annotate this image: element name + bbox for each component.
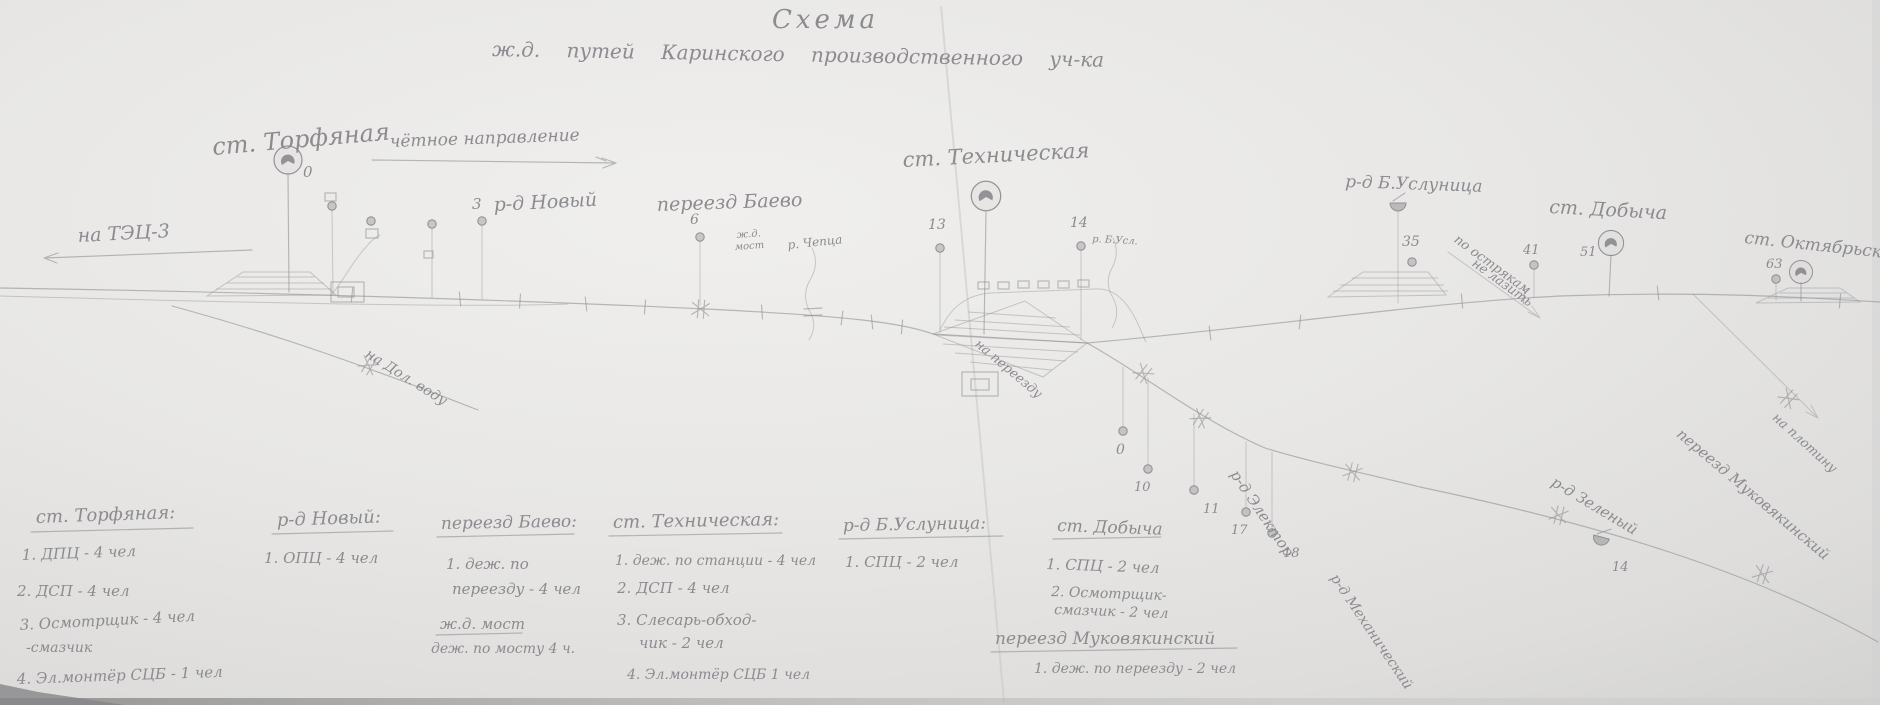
legend-bridge-title: ж.д. мост [440,615,525,633]
baevo-dwarf-signal-icon [696,233,704,241]
legend-torfyanaya-line4: -смазчик [26,640,93,656]
legend-baevo-line1: 1. деж. по [446,555,529,573]
dobycha-main-signal-icon [1598,230,1623,255]
legend-mukovyakinsky-title: переезд Муковякинский [995,629,1215,649]
scheme-title: Схема [772,5,879,35]
legend-tekhnicheskaya-line1: 1. деж. по станции - 4 чел [615,553,816,569]
legend-dobycha-title: ст. Добыча [1057,516,1163,540]
legend-uslunitsa-title: р-д Б.Услуница: [843,514,986,536]
uslunitsa-dwarf-signal-icon [1408,258,1416,266]
uslunitsa-signal-number: 35 [1402,234,1420,250]
torfyanaya-dwarf-signal-icon [367,217,375,225]
branch-signal-0-number: 0 [1116,442,1125,458]
oktyabrskaya-signal-number: 63 [1766,257,1783,272]
legend-baevo-line2: переезду - 4 чел [452,580,581,598]
legend-novy-title: р-д Новый: [276,506,381,531]
legend-baevo-title: переезд Баево: [441,512,577,534]
dobycha-signal51-number: 51 [1580,245,1597,260]
branch-signal-11-number: 11 [1203,502,1220,517]
table-edge-bottom [0,698,1880,705]
legend-tekhnicheskaya-title: ст. Техническая: [613,509,780,533]
legend-torfyanaya-line2: 2. ДСП - 4 чел [16,582,130,600]
torfyanaya-signal-number: 0 [303,163,313,181]
novy-dwarf-signal2-icon [428,220,436,228]
legend-tekhnicheskaya-line2: 2. ДСП - 4 чел [616,579,730,597]
scanned-railway-scheme: Схема ж.д. путей Каринского производстве… [0,0,1880,705]
legend-tekhnicheskaya-line5: 4. Эл.монтёр СЦБ 1 чел [626,667,810,683]
legend-tekhnicheskaya-line3: 3. Слесарь-обход- [617,611,756,629]
oktyabrskaya-dwarf-icon [1772,275,1780,283]
legend-tekhnicheskaya-line4: чик - 2 чел [639,634,724,652]
branch-signal-10-number: 10 [1134,480,1151,495]
baevo-signal-number: 6 [690,212,699,228]
tekhnicheskaya-dwarf13-icon [936,244,944,252]
tekhnicheskaya-signal13-number: 13 [928,217,946,233]
legend-uslunitsa-line1: 1. СПЦ - 2 чел [845,553,958,571]
zeleny-signal-number: 14 [1612,560,1629,575]
scheme-canvas: Схема ж.д. путей Каринского производстве… [0,0,1880,705]
torfyanaya-dwarf-signal2-icon [328,202,336,210]
dobycha-dwarf41-icon [1530,261,1538,269]
legend-bridge-line1: деж. по мосту 4 ч. [431,641,575,657]
tekhnicheskaya-signal14-number: 14 [1070,215,1088,231]
novy-dwarf-signal-icon [478,217,486,225]
paper-background [0,0,1880,705]
tekhnicheskaya-main-signal-icon [971,181,1000,210]
novy-signal-number: 3 [472,195,482,213]
bridge-label-line1: ж.д. [736,228,761,241]
legend-mukovyakinsky-line1: 1. деж. по переезду - 2 чел [1034,661,1236,677]
oktyabrskaya-main-signal-icon [1790,261,1813,284]
branch-signal-17-number: 17 [1231,523,1248,538]
dobycha-signal41-number: 41 [1522,243,1540,258]
torfyanaya-main-signal-icon [274,146,302,174]
bridge-label-line2: мост [734,240,764,253]
tekhnicheskaya-dwarf14-icon [1077,242,1085,250]
legend-novy-line1: 1. ОПЦ - 4 чел [264,549,378,567]
paper-right-edge [1872,0,1880,705]
